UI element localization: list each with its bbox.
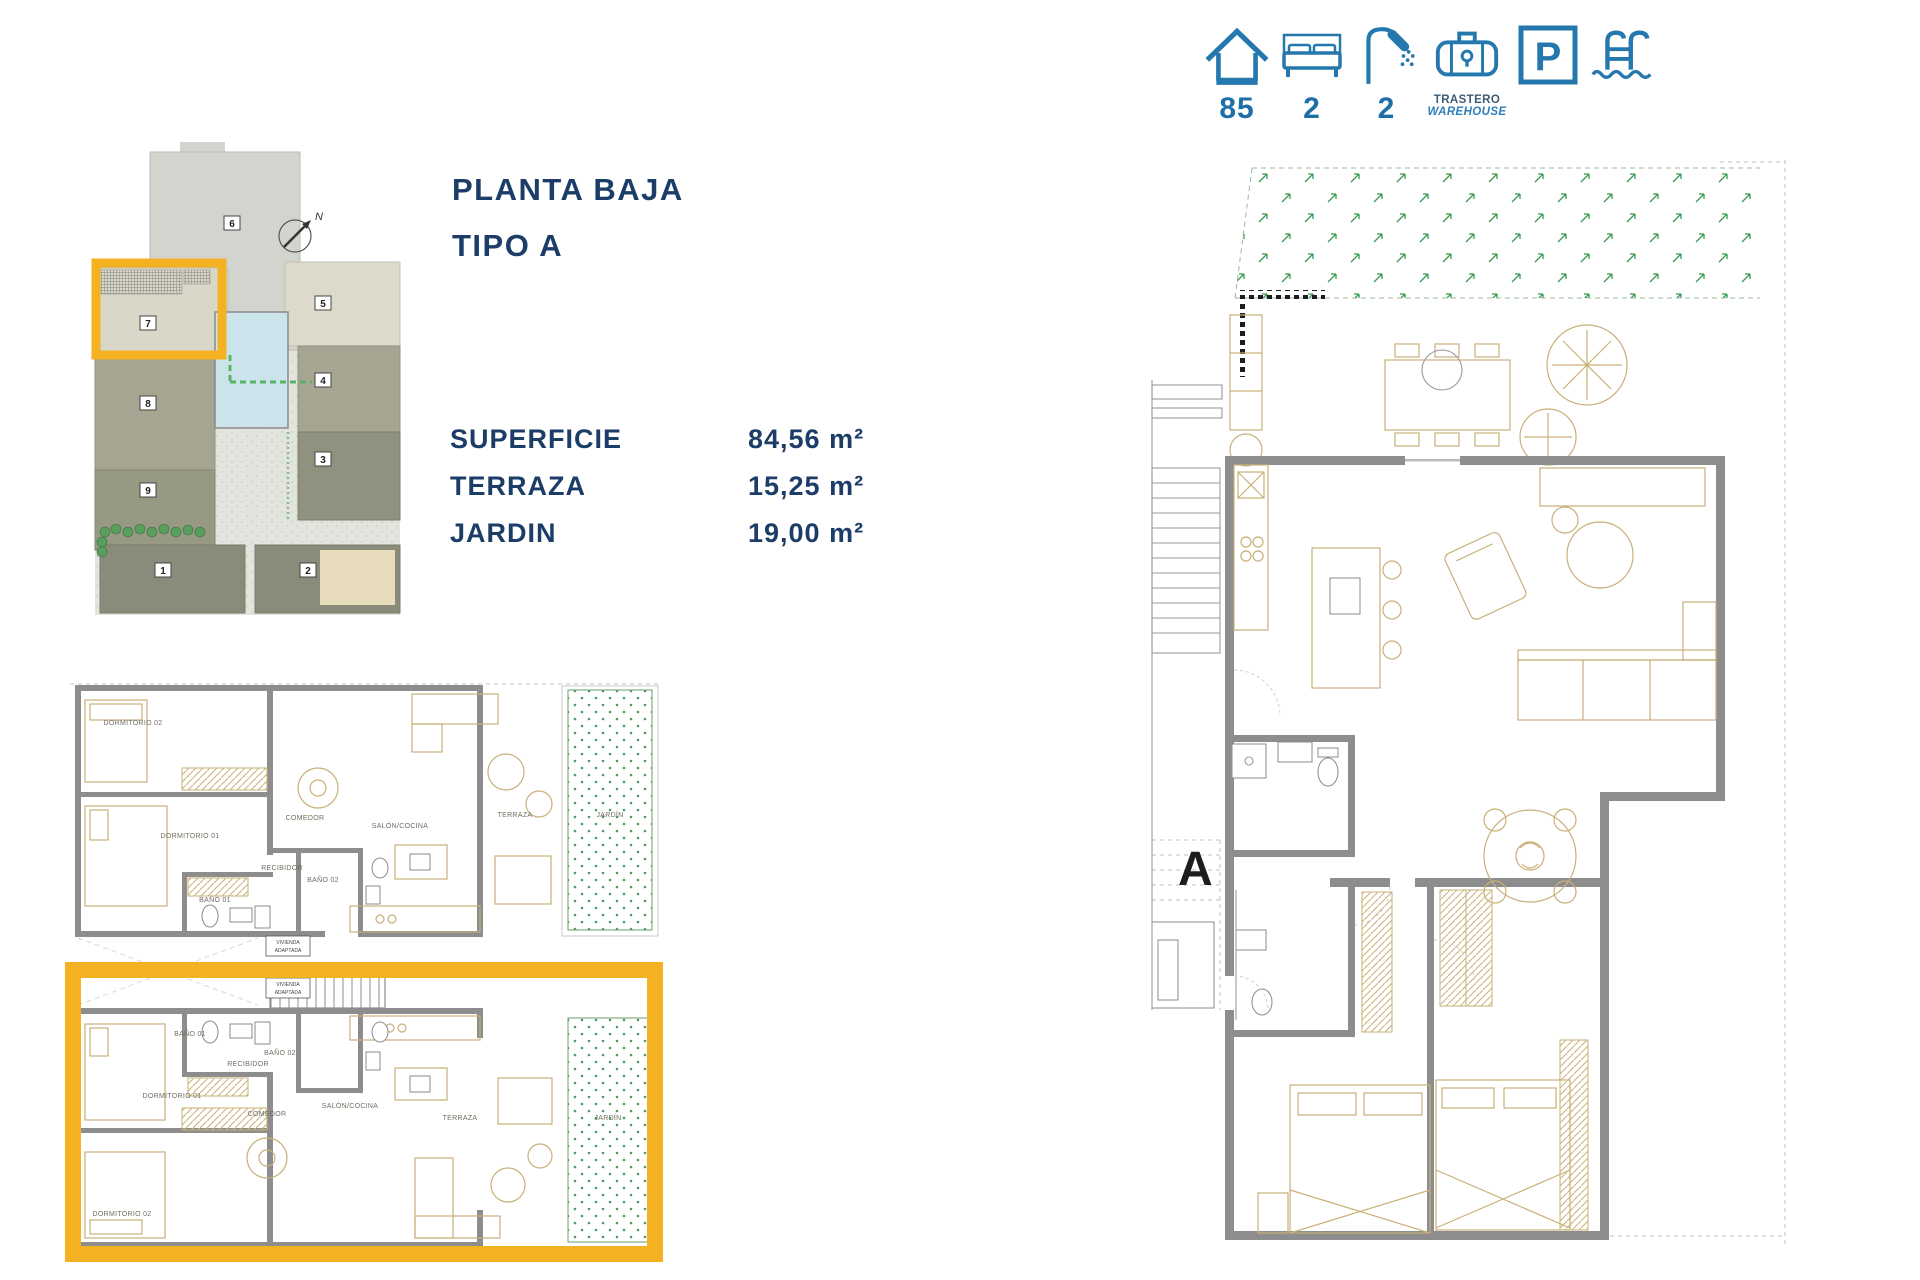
room-label: JARDÍN (596, 810, 623, 819)
lower-jardin (568, 1018, 652, 1242)
parking-summary: P (1516, 22, 1580, 88)
area-summary: 85 (1205, 22, 1269, 126)
site-building-5 (285, 262, 400, 346)
room-label: COMEDOR (286, 815, 325, 822)
bedrooms-value: 2 (1303, 92, 1321, 126)
building-number: 6 (229, 219, 235, 230)
room-label: RECIBIDOR (227, 1061, 269, 1068)
storage-label-en: WAREHOUSE (1428, 106, 1507, 118)
plan-title-line2: TIPO A (452, 228, 563, 264)
site-building-3 (298, 432, 400, 520)
building-number: 4 (320, 376, 326, 387)
site-building-4 (298, 346, 400, 432)
brochure-page: 85 2 (0, 0, 1920, 1280)
vivienda-tag: VIVIENDA ADAPTADA (266, 978, 310, 998)
area-row-superficie: SUPERFICIE 84,56 m² (450, 416, 864, 463)
area-row-jardin: JARDIN 19,00 m² (450, 510, 864, 557)
area-value: 19,00 m² (748, 518, 864, 549)
lower-unit: BAÑO 01 RECIBIDOR BAÑO 02 DORMITORIO 01 … (75, 1008, 652, 1248)
room-label: DORMITORIO 02 (103, 720, 162, 727)
room-label: DORMITORIO 02 (92, 1211, 151, 1218)
bathrooms-value: 2 (1378, 92, 1396, 126)
room-label: BAÑO 01 (174, 1029, 206, 1038)
kitchen (1234, 465, 1401, 688)
room-label: COMEDOR (248, 1111, 287, 1118)
room-label: SALÓN/COCINA (372, 821, 429, 830)
wardrobe (1466, 890, 1492, 1006)
large-floor-plan: A (1140, 150, 1800, 1260)
bedroom-2 (1436, 1080, 1570, 1230)
room-label: JARDÍN (594, 1113, 621, 1122)
area-label: JARDIN (450, 518, 748, 549)
wardrobe (1560, 1040, 1588, 1230)
unit-a-label: A (1178, 843, 1213, 896)
bathrooms-summary: 2 (1355, 22, 1418, 126)
bathroom-1 (1232, 742, 1338, 786)
area-label: TERRAZA (450, 471, 748, 502)
upper-unit: DORMITORIO 02 DORMITORIO 01 BAÑO 01 RECI… (75, 685, 658, 937)
area-table: SUPERFICIE 84,56 m² TERRAZA 15,25 m² JAR… (450, 416, 864, 557)
living-room (1443, 468, 1716, 903)
wardrobe (1440, 890, 1466, 1006)
room-label: DORMITORIO 01 (142, 1093, 201, 1100)
terrace (1230, 290, 1627, 466)
building-number: 7 (145, 319, 151, 330)
site-key-plan: 6 5 7 4 8 3 9 1 2 N (80, 140, 410, 620)
vivienda-tag: VIVIENDA ADAPTADA (266, 936, 310, 956)
bedroom-1 (1258, 1085, 1430, 1233)
area-row-terraza: TERRAZA 15,25 m² (450, 463, 864, 510)
stairs (1152, 380, 1222, 1010)
warehouse-icon (1432, 22, 1502, 88)
storage-label-es: TRASTERO (1434, 94, 1500, 106)
wardrobe (188, 878, 248, 896)
room-label: BAÑO 02 (307, 875, 339, 884)
pool-summary (1591, 22, 1655, 88)
building-number: 9 (145, 486, 151, 497)
svg-text:ADAPTADA: ADAPTADA (275, 990, 302, 996)
parking-icon: P (1516, 22, 1580, 88)
plan-title-line1: PLANTA BAJA (452, 172, 684, 208)
room-label: DORMITORIO 01 (160, 833, 219, 840)
upper-jardin (562, 686, 658, 936)
site-building-9 (95, 470, 215, 550)
storage-summary: TRASTERO WAREHOUSE (1429, 22, 1505, 118)
room-label: RECIBIDOR (261, 865, 303, 872)
north-label: N (315, 211, 323, 223)
wardrobe (1362, 892, 1392, 1032)
building-number: 3 (320, 455, 326, 466)
room-label: TERRAZA (443, 1115, 478, 1122)
area-value: 85 (1219, 92, 1254, 126)
site-building-1 (100, 545, 245, 613)
site-building-8 (95, 354, 215, 470)
building-number: 5 (320, 299, 326, 310)
room-label: BAÑO 02 (264, 1048, 296, 1057)
room-label: TERRAZA (498, 812, 533, 819)
svg-text:VIVIENDA: VIVIENDA (276, 940, 300, 946)
bed-icon (1276, 22, 1348, 88)
area-value: 84,56 m² (748, 424, 864, 455)
svg-text:VIVIENDA: VIVIENDA (276, 982, 300, 988)
site-building-7 (98, 268, 228, 354)
pool-icon (1588, 22, 1658, 88)
bedrooms-summary: 2 (1280, 22, 1344, 126)
small-floor-plan: DORMITORIO 02 DORMITORIO 01 BAÑO 01 RECI… (60, 680, 700, 1280)
room-label: SALÓN/COCINA (322, 1101, 379, 1110)
building-number: 8 (145, 399, 151, 410)
wardrobe (182, 768, 267, 790)
building-number: 2 (305, 566, 311, 577)
parking-letter: P (1535, 35, 1562, 79)
garden-hatch (1235, 168, 1760, 298)
svg-text:ADAPTADA: ADAPTADA (275, 948, 302, 954)
building-number: 1 (160, 566, 166, 577)
area-value: 15,25 m² (748, 471, 864, 502)
room-label: BAÑO 01 (199, 895, 231, 904)
summary-icon-bar: 85 2 (1205, 22, 1655, 126)
area-label: SUPERFICIE (450, 424, 748, 455)
lower-furniture (85, 1016, 552, 1238)
house-icon (1204, 22, 1270, 88)
apartment-walls (1225, 456, 1725, 1240)
shower-icon (1358, 22, 1416, 88)
